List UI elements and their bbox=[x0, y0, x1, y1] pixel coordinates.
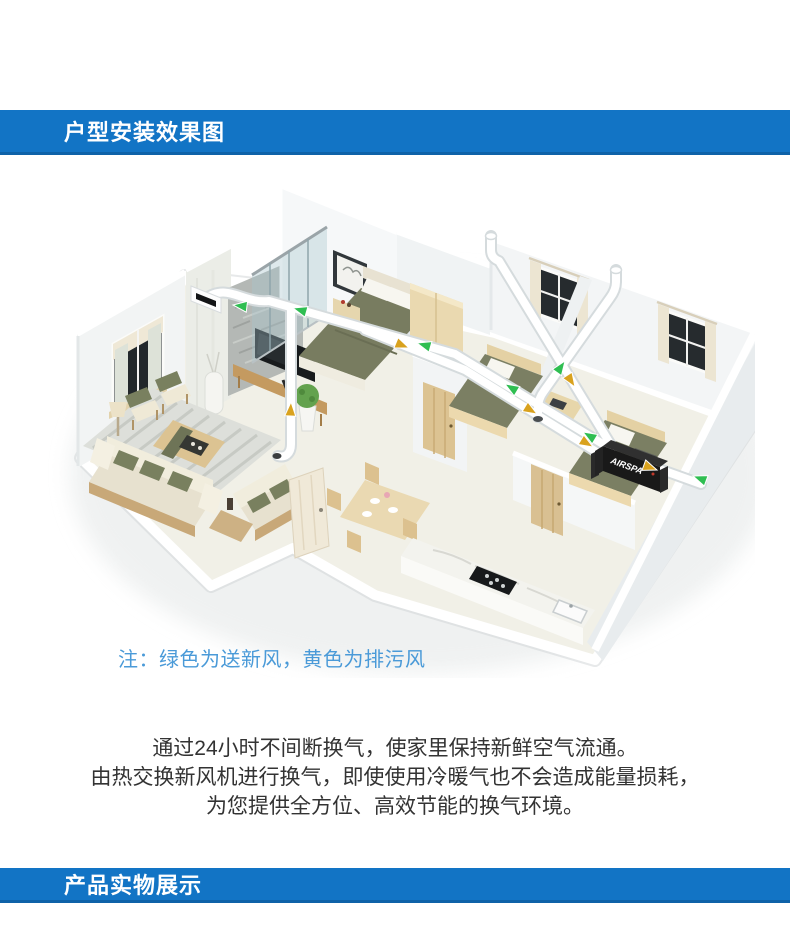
description-paragraph: 通过24小时不间断换气，使家里保持新鲜空气流通。 由热交换新风机进行换气，即使使… bbox=[0, 734, 790, 821]
section-header-install-label: 户型安装效果图 bbox=[64, 115, 225, 147]
section-header-product-label: 产品实物展示 bbox=[64, 868, 202, 900]
floor-plan-render: AIRSPA bbox=[35, 158, 755, 678]
section-header-product: 产品实物展示 bbox=[0, 868, 790, 903]
door-corridor bbox=[423, 382, 455, 460]
door-living-open bbox=[289, 468, 329, 558]
section-header-install: 户型安装效果图 bbox=[0, 110, 790, 155]
description-line: 由热交换新风机进行换气，即使使用冷暖气也不会造成能量损耗， bbox=[0, 763, 790, 792]
floor-plan-illustration: AIRSPA bbox=[35, 158, 755, 678]
floor-plan-note: 注：绿色为送新风，黄色为排污风 bbox=[118, 643, 426, 672]
product-detail-page: 户型安装效果图 bbox=[0, 0, 790, 928]
description-line: 为您提供全方位、高效节能的换气环境。 bbox=[0, 792, 790, 821]
description-line: 通过24小时不间断换气，使家里保持新鲜空气流通。 bbox=[0, 734, 790, 763]
